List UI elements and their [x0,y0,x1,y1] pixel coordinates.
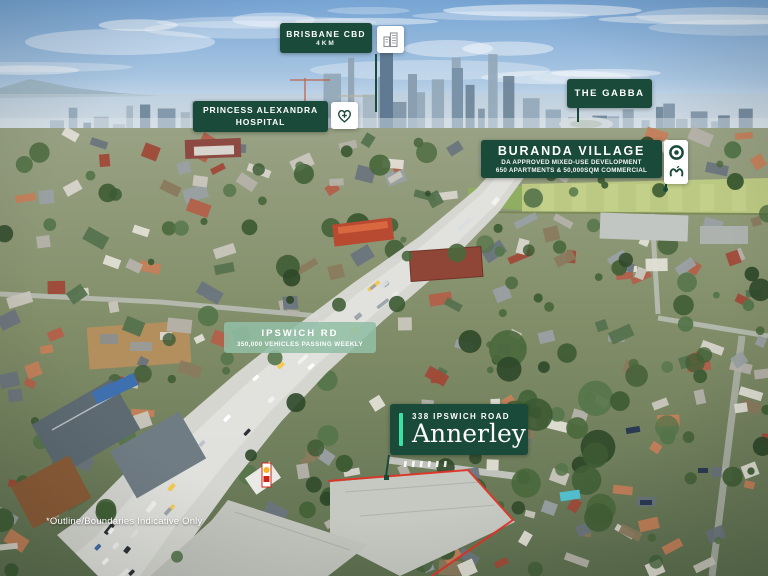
aerial-photo [0,0,768,576]
aerial-marketing-image: BRISBANE CBD 4KM PRINCESS ALEXANDRA HOSP… [0,0,768,576]
brisbane-cbd-label: BRISBANE CBD 4KM [280,23,372,53]
buranda-line2: DA APPROVED MIXED-USE DEVELOPMENT [481,159,662,166]
property-leader-dot [384,475,389,480]
ipswich-rd-title: IPSWICH RD [224,328,376,339]
gabba-label: THE GABBA [567,79,652,108]
hospital-line2: HOSPITAL [193,117,328,128]
buranda-village-label: BURANDA VILLAGE DA APPROVED MIXED-USE DE… [481,140,662,178]
cbd-leader-line [375,54,377,112]
brisbane-cbd-distance: 4KM [280,40,372,47]
buranda-leader-dot [663,187,668,192]
hospital-label: PRINCESS ALEXANDRA HOSPITAL [193,101,328,132]
ipswich-rd-label: IPSWICH RD 350,000 VEHICLES PASSING WEEK… [224,322,376,353]
buranda-title: BURANDA VILLAGE [481,144,662,158]
ipswich-rd-subtitle: 350,000 VEHICLES PASSING WEEKLY [224,341,376,348]
retailer-icons-box [664,140,688,184]
brisbane-cbd-title: BRISBANE CBD [280,29,372,39]
gabba-title: THE GABBA [567,88,652,99]
city-buildings-icon [377,26,404,53]
heart-medical-cross-icon [331,102,358,129]
hospital-line1: PRINCESS ALEXANDRA [193,105,328,116]
accent-bar [399,413,403,446]
gabba-leader-line [577,108,579,122]
property-suburb: Annerley [412,421,528,447]
buranda-line3: 650 APARTMENTS & 50,000SQM COMMERCIAL [481,167,662,174]
property-label: 338 IPSWICH ROAD Annerley [390,404,528,455]
woolworths-logo-icon [668,163,685,180]
disclaimer-text: *Outline/Boundaries Indicative Only [46,516,202,527]
target-logo-icon [668,144,685,161]
